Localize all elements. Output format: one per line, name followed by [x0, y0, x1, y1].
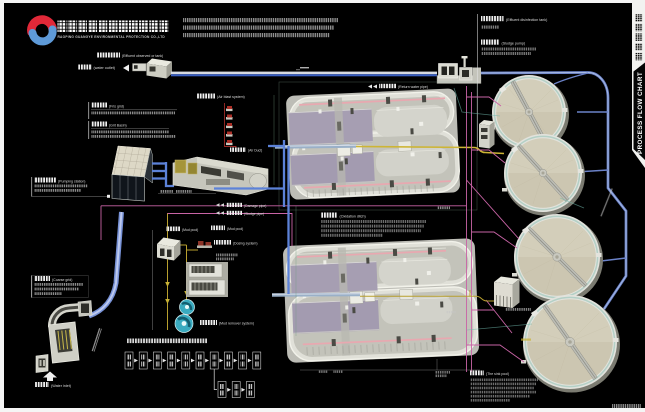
svg-text:RAOPING GUANGYE ENVIRONMENTAL: RAOPING GUANGYE ENVIRONMENTAL PROTECTION…: [58, 35, 166, 39]
svg-text:(Water inlet): (Water inlet): [51, 384, 71, 388]
svg-text:(Oxidation ditch): (Oxidation ditch): [340, 214, 366, 218]
svg-text:(Coarse grid): (Coarse grid): [52, 278, 72, 282]
svg-text:(Dosing system): (Dosing system): [233, 241, 258, 245]
svg-text:(Mud pool): (Mud pool): [227, 227, 243, 231]
svg-text:(Grit Basin): (Grit Basin): [109, 123, 127, 127]
svg-text:(Sludge pipe): (Sludge pipe): [244, 212, 264, 216]
svg-text:(Effluent disinfection tank): (Effluent disinfection tank): [506, 18, 547, 22]
svg-text:(Sludge pump): (Sludge pump): [502, 41, 526, 45]
svg-text:(Mud remover system): (Mud remover system): [219, 322, 254, 326]
svg-text:(Return water pipe): (Return water pipe): [398, 85, 428, 89]
svg-text:(Effluent observed or tank): (Effluent observed or tank): [122, 54, 163, 58]
svg-text:(Damage pipe): (Damage pipe): [244, 204, 266, 208]
svg-text:PROCESS FLOW CHART: PROCESS FLOW CHART: [637, 72, 644, 154]
svg-text:(The sink pool): (The sink pool): [486, 372, 509, 376]
svg-text:(Fris grid): (Fris grid): [109, 104, 124, 108]
svg-text:(Air blast system): (Air blast system): [217, 95, 245, 99]
svg-text:(Air Duct): (Air Duct): [248, 149, 262, 153]
svg-text:(Mud pool): (Mud pool): [182, 228, 198, 232]
svg-text:(water outlet): (water outlet): [94, 66, 116, 70]
svg-text:(Pumping station): (Pumping station): [58, 179, 85, 183]
